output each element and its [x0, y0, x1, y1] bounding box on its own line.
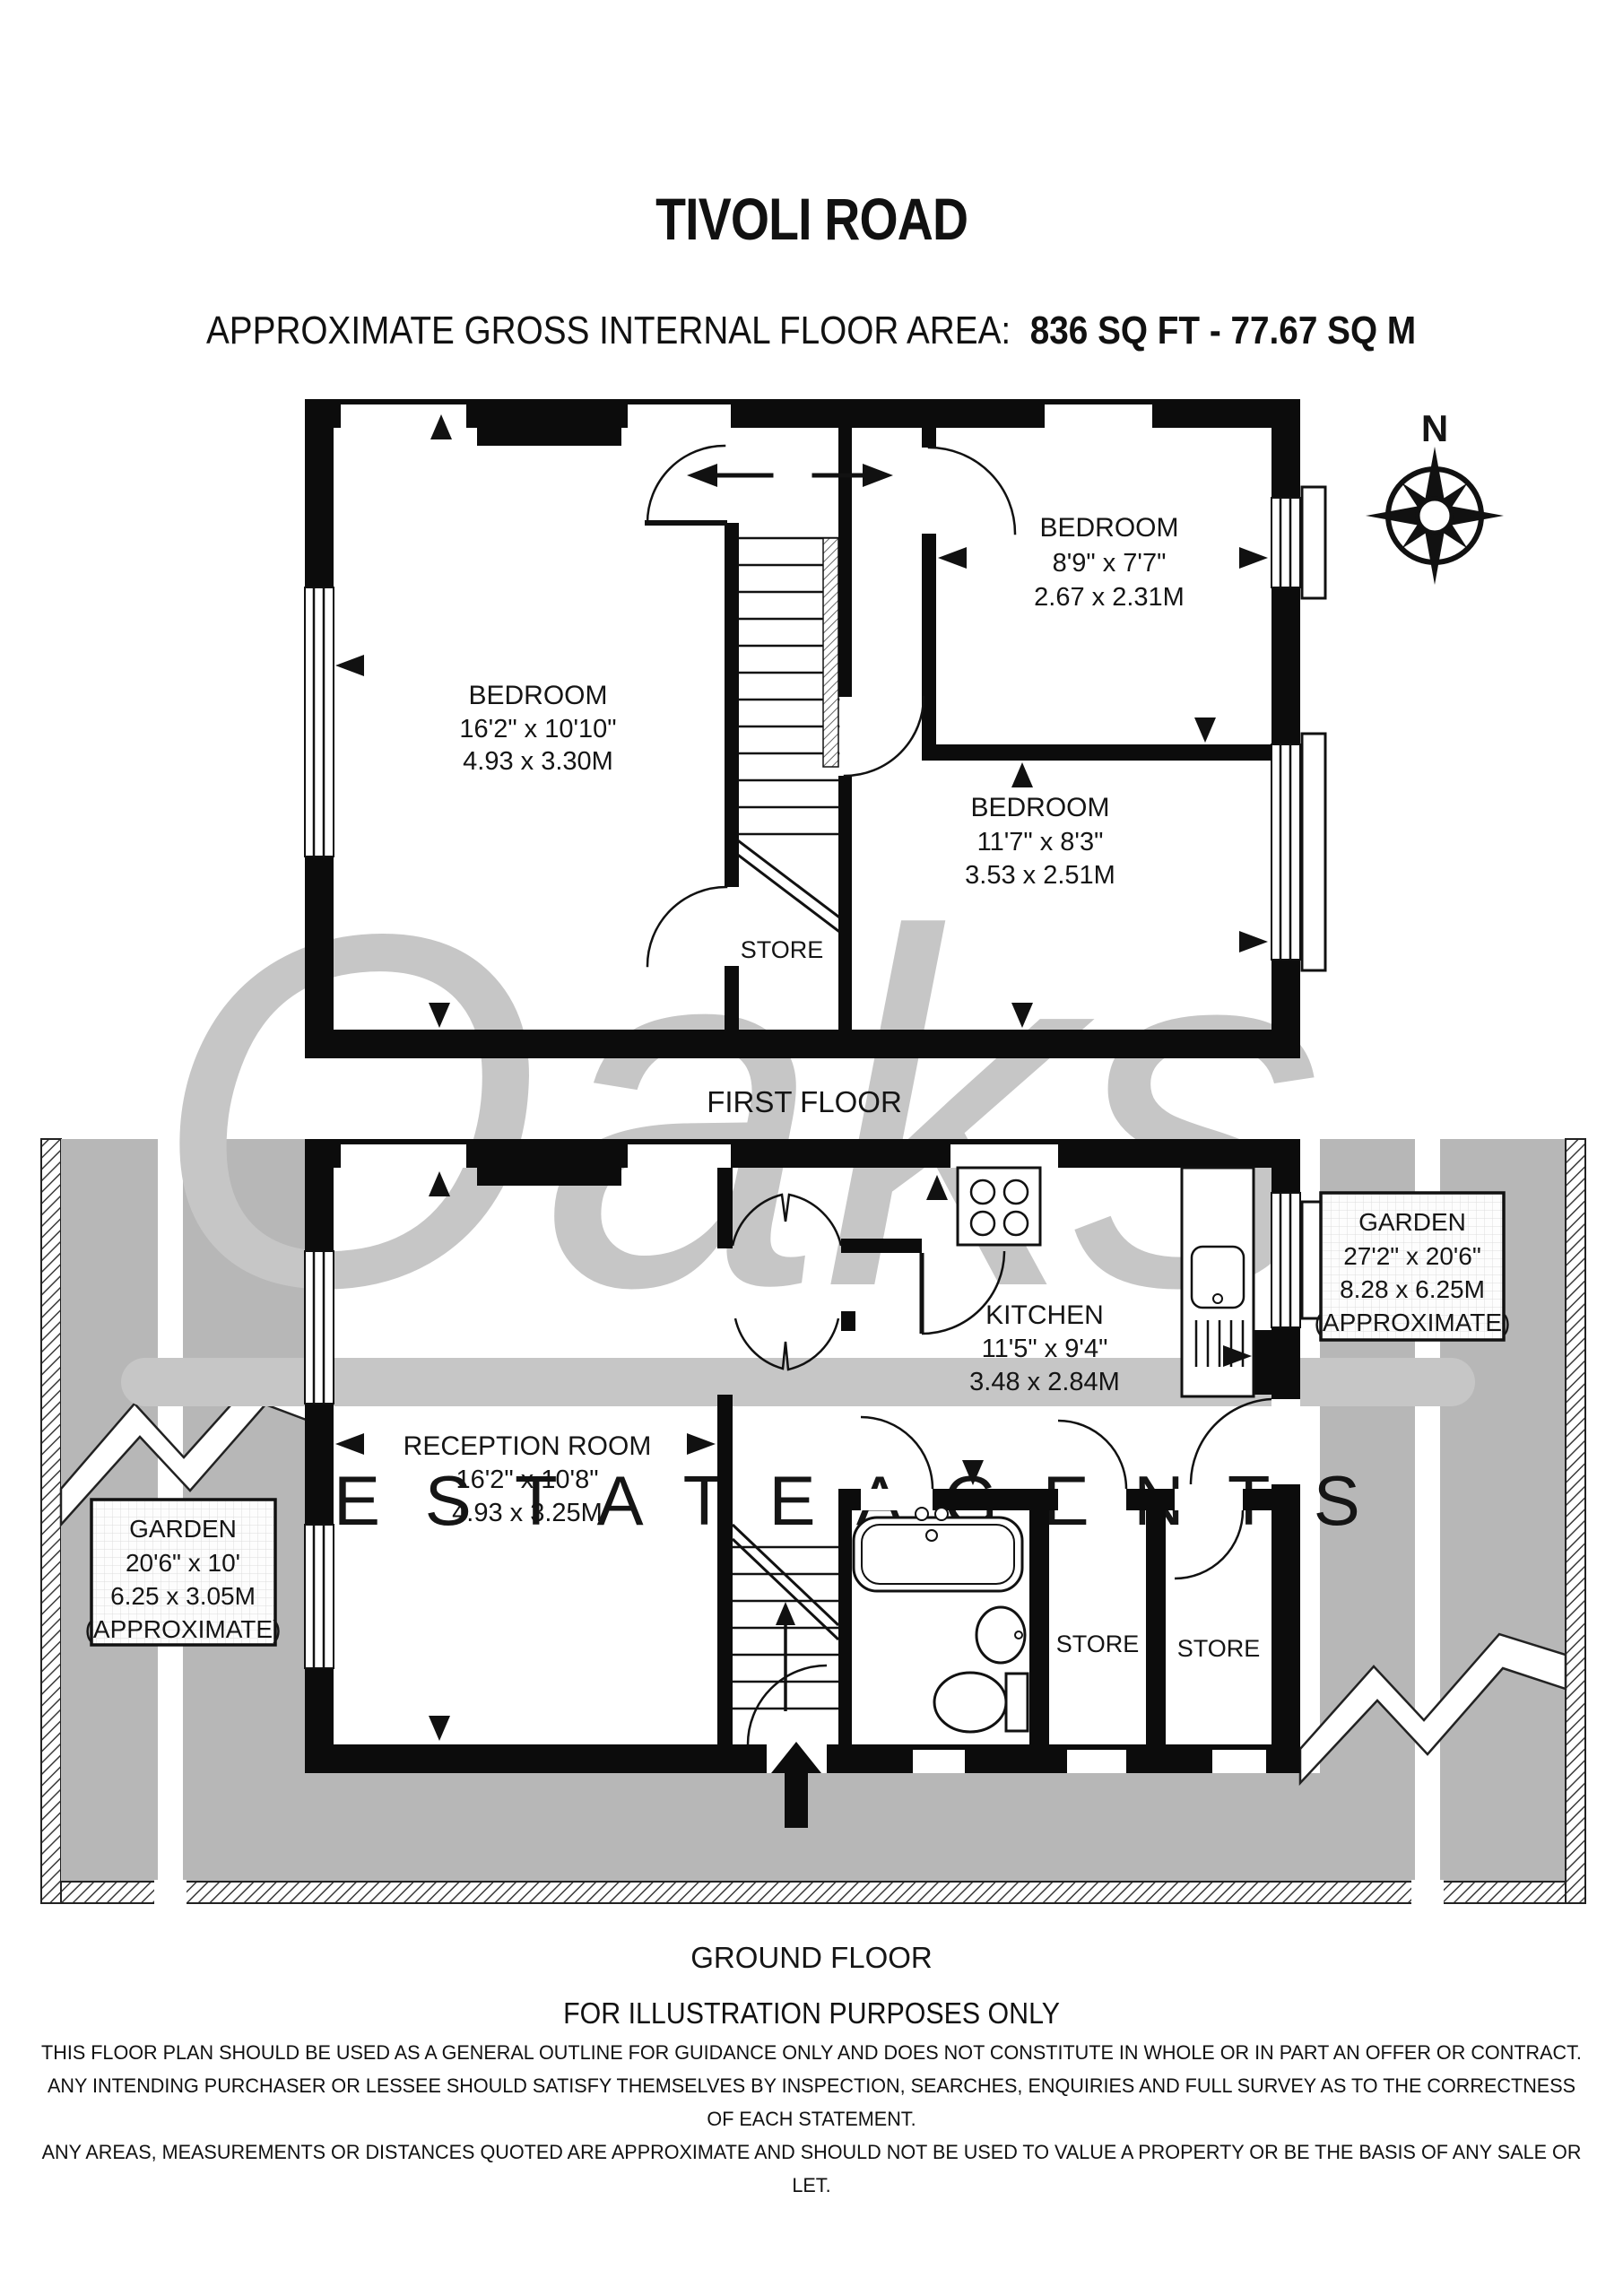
garden-right-metric: 8.28 x 6.25M — [1340, 1275, 1485, 1303]
gf-reception-name: RECEPTION ROOM — [404, 1431, 652, 1461]
garden-left-note: (APPROXIMATE) — [85, 1615, 282, 1643]
disclaimer-line-1: THIS FLOOR PLAN SHOULD BE USED AS A GENE… — [32, 2036, 1591, 2069]
front-hatch-gap-left — [154, 1880, 187, 1905]
gf-window-left-1 — [305, 1251, 334, 1404]
disclaimer-line-2: ANY INTENDING PURCHASER OR LESSEE SHOULD… — [32, 2069, 1591, 2135]
gf-vent-2 — [1067, 1750, 1126, 1773]
window-left-wall — [305, 587, 334, 857]
toilet-icon — [934, 1673, 1028, 1732]
garden-left-label-box: GARDEN 20'6" x 10' 6.25 x 3.05M (APPROXI… — [85, 1500, 282, 1645]
basin-icon — [976, 1607, 1025, 1663]
bathtub-icon — [854, 1508, 1022, 1591]
ff-bedroom2-name: BEDROOM — [1039, 513, 1178, 543]
front-garden-strip — [323, 1773, 1320, 1882]
subtitle-value: 836 SQ FT - 77.67 SQ M — [1030, 309, 1416, 352]
gf-kitchen-metric: 3.48 x 2.84M — [969, 1368, 1120, 1396]
window-right-wall-1 — [1271, 487, 1325, 598]
ff-bedroom3-imperial: 11'7" x 8'3" — [977, 828, 1104, 857]
gf-store2-label: STORE — [1177, 1635, 1261, 1662]
gf-store2-door-gap — [1175, 1489, 1243, 1510]
ff-store-label: STORE — [741, 936, 824, 963]
compass-north-label: N — [1421, 407, 1448, 449]
hob-icon — [958, 1168, 1040, 1245]
window-top-2 — [628, 404, 731, 428]
gf-kitchen-name: KITCHEN — [985, 1300, 1104, 1330]
floor-area-subtitle: APPROXIMATE GROSS INTERNAL FLOOR AREA: 8… — [0, 309, 1623, 353]
gf-window-top-1 — [341, 1144, 466, 1168]
window-top-3 — [1045, 404, 1152, 428]
landing-arrows — [687, 464, 893, 487]
page-title: TIVOLI ROAD — [0, 185, 1623, 253]
gf-window-top-3 — [950, 1144, 1058, 1168]
garden-left-name: GARDEN — [129, 1515, 237, 1543]
window-right-wall-2 — [1271, 734, 1325, 970]
ff-bedroom1-metric: 4.93 x 3.30M — [463, 747, 613, 776]
garden-left-metric: 6.25 x 3.05M — [110, 1582, 256, 1610]
garden-left-boundary-hatch — [41, 1139, 61, 1903]
garden-right-label-box: GARDEN 27'2" x 20'6" 8.28 x 6.25M (APPRO… — [1315, 1193, 1511, 1340]
gf-kitchen-imperial: 11'5" x 9'4" — [982, 1335, 1108, 1363]
garden-right-boundary-hatch — [1566, 1139, 1585, 1903]
gf-window-top-2 — [628, 1144, 731, 1168]
staircase-ground-floor — [733, 1525, 838, 1711]
first-floor-caption: FIRST FLOOR — [707, 1085, 902, 1118]
gf-store1-label: STORE — [1056, 1631, 1140, 1657]
gf-store1-door-gap — [1058, 1489, 1126, 1510]
gf-reception-imperial: 16'2" x 10'8" — [456, 1465, 598, 1494]
floorplan-page: { "header": { "title": "TIVOLI ROAD", "s… — [0, 0, 1623, 2296]
illustration-note: FOR ILLUSTRATION PURPOSES ONLY — [0, 1996, 1623, 2031]
disclaimer-line-3: ANY AREAS, MEASUREMENTS OR DISTANCES QUO… — [32, 2135, 1591, 2202]
ff-bedroom3-name: BEDROOM — [970, 793, 1109, 822]
gf-vent-3 — [1212, 1750, 1266, 1773]
garden-right-name: GARDEN — [1358, 1208, 1466, 1236]
gf-kitchen-window-right — [1271, 1193, 1325, 1327]
ff-bedroom2-imperial: 8'9" x 7'7" — [1053, 549, 1167, 578]
gf-reception-metric: 4.93 x 3.25M — [452, 1499, 603, 1527]
garden-right-imperial: 27'2" x 20'6" — [1343, 1242, 1481, 1270]
ff-bedroom1-name: BEDROOM — [468, 681, 607, 710]
disclaimer: THIS FLOOR PLAN SHOULD BE USED AS A GENE… — [0, 2036, 1623, 2202]
gf-window-left-2 — [305, 1525, 334, 1668]
gf-vent-1 — [913, 1750, 965, 1773]
garden-left-imperial: 20'6" x 10' — [126, 1549, 240, 1577]
floorplan-canvas: Oaks E S T A T E A G E N T S — [0, 377, 1623, 1979]
subtitle-label: APPROXIMATE GROSS INTERNAL FLOOR AREA: — [206, 309, 1011, 352]
ff-bedroom3-metric: 3.53 x 2.51M — [965, 861, 1115, 890]
front-hatch-gap-right — [1411, 1880, 1444, 1905]
ff-bedroom2-metric: 2.67 x 2.31M — [1034, 583, 1185, 612]
kitchen-sink-icon — [1182, 1168, 1254, 1396]
ff-bedroom1-imperial: 16'2" x 10'10" — [459, 715, 616, 744]
garden-right-note: (APPROXIMATE) — [1315, 1309, 1511, 1336]
window-top-1 — [341, 404, 466, 428]
front-door-arc — [748, 1665, 827, 1744]
gf-garden-door-gap — [1271, 1399, 1300, 1484]
front-boundary-hatch — [61, 1882, 1566, 1903]
ground-floor-caption: GROUND FLOOR — [690, 1941, 933, 1974]
compass-rose-icon: N — [1366, 407, 1504, 585]
